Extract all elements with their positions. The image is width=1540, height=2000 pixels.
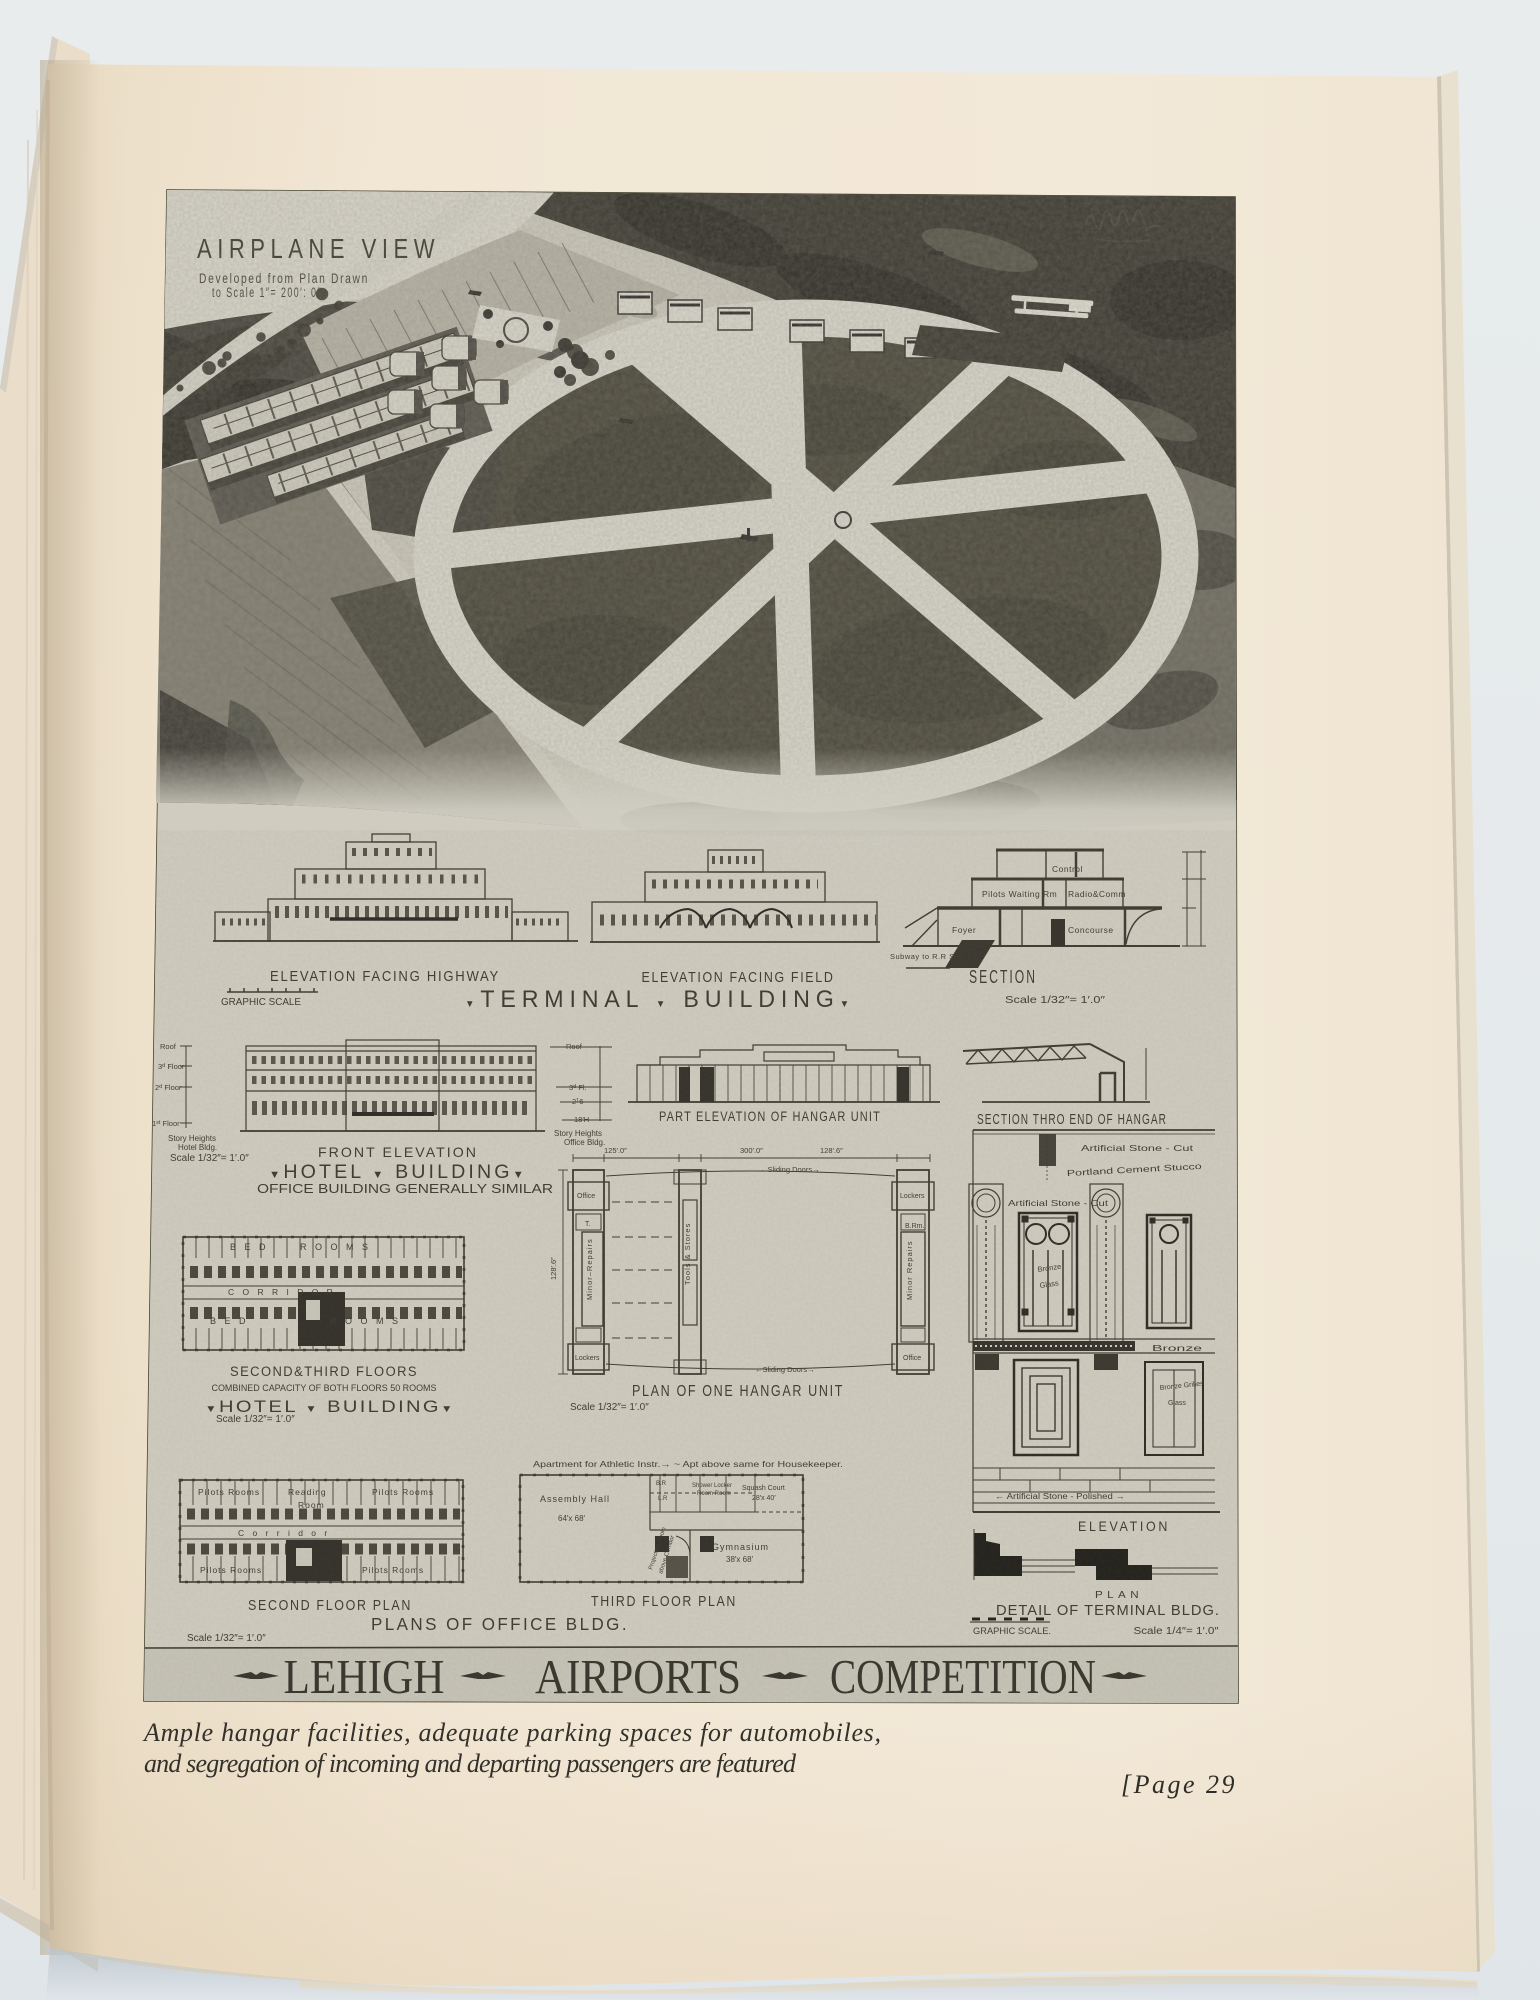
svg-text:Ample hangar facilities, adequ: Ample hangar facilities, adequate parkin… — [142, 1718, 881, 1747]
svg-text:LEHIGH: LEHIGH — [284, 1649, 445, 1704]
svg-text:[Page 29: [Page 29 — [1121, 1770, 1237, 1799]
svg-text:and segregation of incoming an: and segregation of incoming and departin… — [144, 1749, 797, 1778]
svg-text:COMPETITION: COMPETITION — [830, 1649, 1096, 1704]
svg-text:AIRPORTS: AIRPORTS — [535, 1649, 741, 1704]
